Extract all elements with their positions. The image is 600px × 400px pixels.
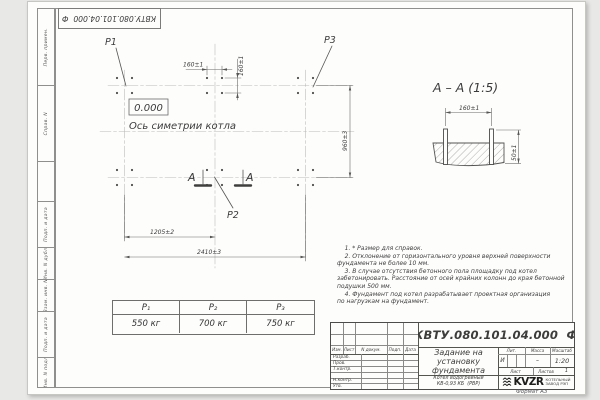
dim-960: 960±3	[342, 131, 349, 151]
note-line: забетонировать. Расстояние от осей крайн…	[337, 275, 583, 283]
mass-value: –	[525, 354, 550, 367]
technical-notes: 1. * Размер для справок. 2. Отклонение о…	[337, 245, 583, 306]
section-dim-50: 50±1	[511, 145, 518, 161]
note-line: 4. Фундамент под котел разрабатывает про…	[337, 291, 583, 299]
scale-header: Масштаб	[550, 347, 574, 354]
load-point-p3-label: P3	[324, 35, 336, 46]
kvzr-logo: KVZR КОТЕЛЬНЫЙ ЗАВОД РЭП	[498, 375, 574, 389]
load-table-header: P₁	[113, 301, 180, 315]
dim-1205: 1205±2	[150, 229, 174, 236]
load-point-p2-label: P2	[227, 210, 239, 221]
drawing-title: Задание на установку фундамента	[419, 347, 498, 375]
cut-letter-left: А	[187, 171, 196, 184]
product-name: Котел водогрейный КВ-0,93 КБ (РВР)	[419, 375, 498, 389]
sheets-total-value: 1	[559, 367, 574, 375]
load-table-header: P₂	[180, 301, 247, 315]
lit-header: Лит.	[498, 347, 525, 354]
section-dim-160: 160±1	[459, 105, 479, 112]
note-line: подушки 500 мм.	[337, 283, 583, 291]
rev-col-docnum: N докум.	[355, 345, 387, 354]
kvzr-logo-text: KVZR	[514, 376, 544, 388]
load-table-value: 750 кг	[247, 315, 314, 333]
rev-col-list: Лист	[343, 345, 355, 354]
kvzr-logo-caption: КОТЕЛЬНЫЙ ЗАВОД РЭП	[546, 378, 571, 387]
lit-value: И	[498, 354, 507, 367]
load-table: P₁ P₂ P₃ 550 кг 700 кг 750 кг	[112, 300, 315, 335]
title-block: Изм. Лист N докум. Подп. Дата Разраб. Пр…	[330, 322, 575, 390]
drawing-viewer: { "sheet": { "stamp_top": "КВТУ.080.101.…	[0, 0, 600, 400]
sig-row-utv: Утв.	[331, 383, 363, 389]
sheets-total-label: Листов	[533, 367, 559, 375]
kvzr-logo-icon	[502, 377, 512, 387]
doc-number: КВТУ.080.101.04.000 Ф	[418, 323, 574, 347]
section-title: А – А (1:5)	[432, 80, 498, 95]
note-line: по нагрузкам на фундамент.	[337, 298, 583, 306]
format-label: Формат А3	[516, 389, 547, 395]
elevation-mark: 0.000	[134, 103, 163, 114]
note-line: фундамента не более 10 мм.	[337, 260, 583, 268]
load-table-value: 700 кг	[180, 315, 247, 333]
boiler-symmetry-axis-label: Ось симетрии котла	[129, 121, 236, 132]
note-line: 1. * Размер для справок.	[337, 245, 583, 253]
scale-value: 1:20	[550, 354, 574, 367]
anchor-bolt	[490, 129, 494, 165]
rev-col-izm: Изм.	[331, 345, 343, 354]
dim-160-side: 160±1	[238, 56, 245, 76]
anchor-bolt	[444, 129, 448, 165]
rev-col-data: Дата	[403, 345, 418, 354]
mass-header: Масса	[525, 347, 550, 354]
load-point-p1-label: P1	[105, 37, 117, 48]
dim-160-top: 160±1	[183, 62, 203, 69]
load-table-header: P₃	[247, 301, 314, 315]
sheet-number-label: Лист	[498, 367, 533, 375]
load-table-value: 550 кг	[113, 315, 180, 333]
note-line: 2. Отклонение от горизонтального уровня …	[337, 253, 583, 261]
note-line: 3. В случае отсутствия бетонного пола пл…	[337, 268, 583, 276]
cut-letter-right: А	[245, 171, 254, 184]
rev-col-podp: Подп.	[387, 345, 403, 354]
plan-view: P1 P3 P2 0.000 Ось симетрии котла 160±1 …	[100, 35, 354, 268]
dim-2410: 2410±3	[197, 249, 221, 256]
section-view: А – А (1:5) 160±1 50±1	[432, 80, 521, 166]
